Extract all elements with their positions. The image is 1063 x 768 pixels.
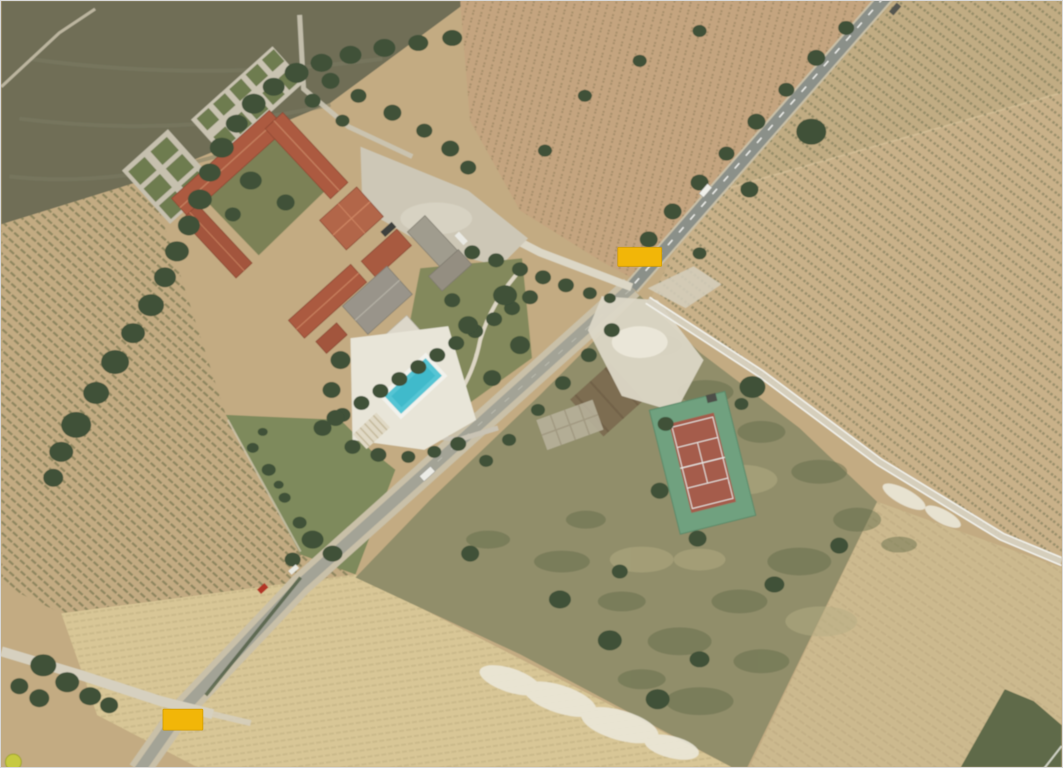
road-label-marker-2[interactable]: Road label marker	[163, 709, 203, 730]
satellite-imagery-canvas[interactable]: Satellite imagery canvas Dark plowed fie…	[1, 1, 1062, 767]
yellow-green-object-corner	[5, 754, 21, 767]
road-label-marker-1[interactable]: Road label marker	[618, 247, 662, 266]
satellite-map-viewport[interactable]: Satellite imagery canvas Dark plowed fie…	[0, 0, 1063, 768]
gravel-bright-patch	[612, 326, 668, 358]
